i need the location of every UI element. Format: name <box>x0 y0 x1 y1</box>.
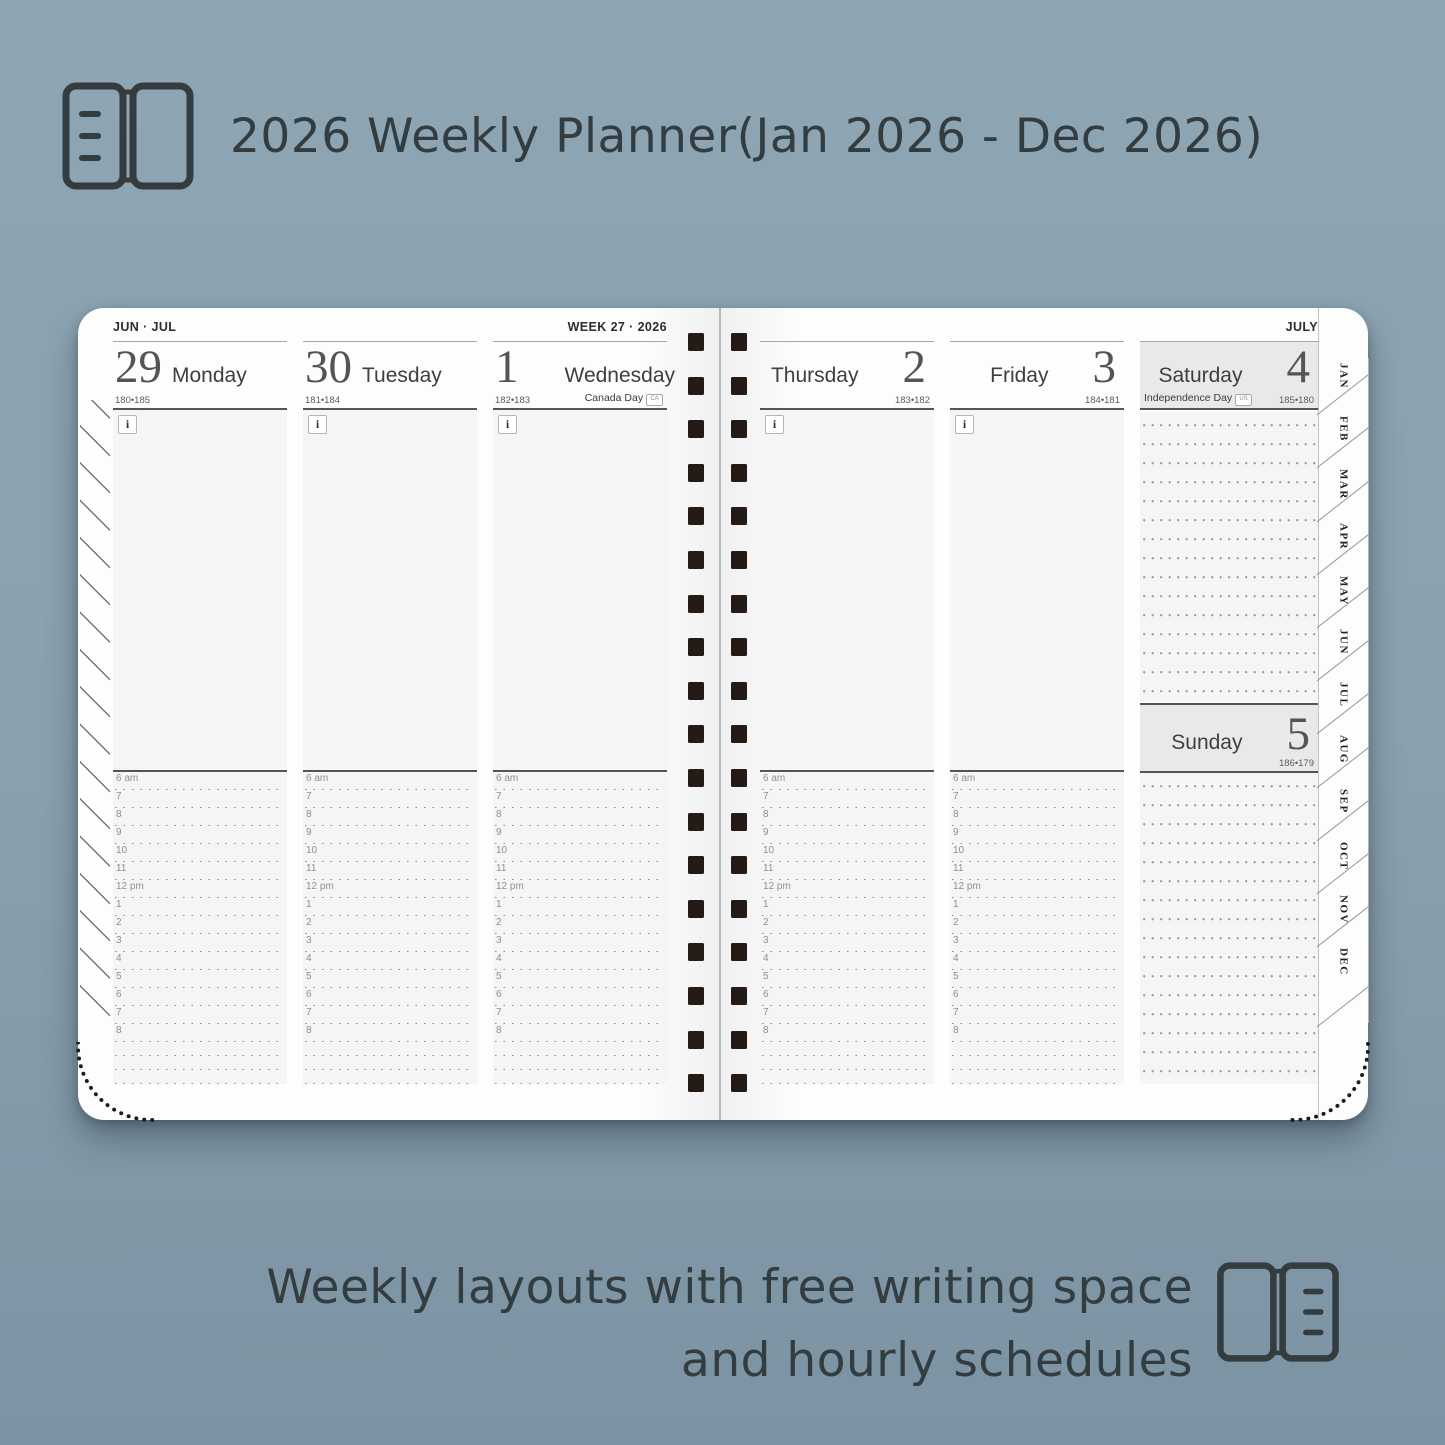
binding-hole <box>688 507 704 525</box>
open-planner-icon <box>58 80 198 192</box>
binding-hole <box>688 638 704 656</box>
hour-label: 7 <box>953 791 959 802</box>
hour-row: 9 <box>760 826 934 844</box>
day-name: Tuesday <box>362 364 442 388</box>
sunday-notes-area <box>1140 773 1318 1084</box>
note-row <box>303 1042 477 1056</box>
hour-row: 12 pm <box>493 880 667 898</box>
hour-label: 11 <box>763 863 773 874</box>
saturday-header: Saturday 4 Independence Day US 185•180 <box>1140 342 1318 408</box>
month-tab-mar: MAR <box>1319 464 1369 517</box>
weekend-column: Saturday 4 Independence Day US 185•180 S… <box>1140 341 1318 1084</box>
hour-label: 1 <box>953 899 959 910</box>
note-row <box>303 1070 477 1084</box>
hour-row: 2 <box>760 916 934 934</box>
day-header: Thursday 2 <box>760 344 934 400</box>
binding-hole <box>731 464 747 482</box>
hour-row: 10 <box>760 844 934 862</box>
info-icon: i <box>498 415 517 434</box>
binding-hole <box>688 682 704 700</box>
month-tab-label: APR <box>1338 523 1350 550</box>
day-of-year: 180•185 <box>115 395 150 406</box>
binding-hole <box>731 769 747 787</box>
hour-row: 6 am <box>760 772 934 790</box>
hour-row: 4 <box>113 952 287 970</box>
month-tab-oct: OCT <box>1319 837 1369 890</box>
hourly-schedule: 6 am789101112 pm12345678 <box>760 772 934 1084</box>
hour-label: 10 <box>763 845 774 856</box>
binding-hole <box>688 725 704 743</box>
month-tab-label: MAR <box>1338 469 1350 500</box>
day-name: Wednesday <box>565 364 676 388</box>
hour-row: 2 <box>113 916 287 934</box>
hour-label: 7 <box>763 791 769 802</box>
info-icon: i <box>308 415 327 434</box>
hour-label: 6 <box>496 989 502 1000</box>
hour-row: 6 <box>493 988 667 1006</box>
hour-label: 4 <box>763 953 769 964</box>
hour-row: 7 <box>113 1006 287 1024</box>
day-ordinal-row: 181•184 <box>305 393 473 406</box>
note-row <box>760 1042 934 1056</box>
hourly-schedule: 6 am789101112 pm12345678 <box>113 772 287 1084</box>
binding-hole <box>731 507 747 525</box>
day-header: Friday 3 <box>950 344 1124 400</box>
hour-row: 9 <box>113 826 287 844</box>
hour-label: 6 am <box>496 773 518 784</box>
hour-row: 10 <box>303 844 477 862</box>
caption-line-1: Weekly layouts with free writing space <box>266 1252 1193 1325</box>
note-row <box>950 1042 1124 1056</box>
month-tab-may: MAY <box>1319 571 1369 624</box>
month-tab-label: NOV <box>1338 895 1350 924</box>
hour-label: 9 <box>496 827 502 838</box>
holiday-label: Independence Day US <box>1144 392 1252 406</box>
hour-label: 5 <box>953 971 959 982</box>
hour-row: 4 <box>760 952 934 970</box>
month-tab-label: OCT <box>1338 842 1350 870</box>
hour-row: 12 pm <box>760 880 934 898</box>
hour-label: 10 <box>953 845 964 856</box>
spiral-binding <box>688 308 752 1120</box>
day-of-year: 182•183 <box>495 395 530 406</box>
hour-label: 7 <box>763 1007 769 1018</box>
binding-hole <box>731 1031 747 1049</box>
hour-label: 7 <box>116 791 122 802</box>
header-rule <box>1140 408 1318 410</box>
hour-row: 8 <box>760 1024 934 1042</box>
hour-label: 9 <box>306 827 312 838</box>
binding-hole <box>688 856 704 874</box>
hour-label: 12 pm <box>763 881 791 892</box>
info-icon: i <box>955 415 974 434</box>
note-row <box>950 1070 1124 1084</box>
day-of-year: 183•182 <box>895 395 930 406</box>
page-title: 2026 Weekly Planner(Jan 2026 - Dec 2026) <box>230 109 1263 164</box>
hour-row: 7 <box>760 790 934 808</box>
day-number: 5 <box>1287 711 1311 758</box>
hour-label: 7 <box>496 791 502 802</box>
hour-row: 1 <box>113 898 287 916</box>
hour-label: 6 <box>763 989 769 1000</box>
hour-label: 10 <box>496 845 507 856</box>
writing-area: i 6 am789101112 pm12345678 <box>113 410 287 1084</box>
hour-row: 10 <box>113 844 287 862</box>
info-icon: i <box>765 415 784 434</box>
caption-line-2: and hourly schedules <box>266 1325 1193 1398</box>
hour-row: 7 <box>950 1006 1124 1024</box>
month-tab-label: FEB <box>1338 416 1350 442</box>
hour-label: 1 <box>763 899 769 910</box>
hour-label: 6 <box>306 989 312 1000</box>
hour-row: 4 <box>493 952 667 970</box>
tear-corner-dots-left <box>76 1042 156 1122</box>
month-tab-label: DEC <box>1338 948 1350 976</box>
hour-row: 6 <box>760 988 934 1006</box>
day-number: 1 <box>495 344 519 391</box>
hour-label: 10 <box>306 845 317 856</box>
hour-row: 6 am <box>950 772 1124 790</box>
dotted-rule <box>495 1083 665 1084</box>
hour-label: 8 <box>763 809 769 820</box>
writing-area: i 6 am789101112 pm12345678 <box>303 410 477 1084</box>
hour-row: 12 pm <box>950 880 1124 898</box>
hour-label: 8 <box>306 809 312 820</box>
month-tab-apr: APR <box>1319 518 1369 571</box>
day-name: Friday <box>990 364 1048 388</box>
day-ordinal-row: Independence Day US 185•180 <box>1144 393 1314 406</box>
hour-label: 8 <box>953 809 959 820</box>
hour-row: 7 <box>303 790 477 808</box>
hour-label: 5 <box>306 971 312 982</box>
month-tab-label: JUN <box>1338 629 1350 655</box>
binding-hole <box>688 1074 704 1092</box>
hour-label: 8 <box>763 1025 769 1036</box>
hour-label: 3 <box>116 935 122 946</box>
month-tab-label: MAY <box>1338 576 1350 606</box>
hour-label: 4 <box>116 953 122 964</box>
hour-row: 3 <box>950 934 1124 952</box>
binding-hole <box>688 420 704 438</box>
hour-label: 7 <box>116 1007 122 1018</box>
hour-label: 4 <box>496 953 502 964</box>
hour-label: 7 <box>306 1007 312 1018</box>
day-of-year: 181•184 <box>305 395 340 406</box>
hour-row: 6 <box>950 988 1124 1006</box>
sunday-header: Sunday 5 186•179 <box>1140 703 1318 773</box>
hour-label: 12 pm <box>306 881 334 892</box>
hour-label: 6 am <box>763 773 785 784</box>
dotted-rule <box>762 1083 932 1084</box>
saturday-notes-area <box>1140 412 1318 701</box>
writing-area: i 6 am789101112 pm12345678 <box>950 410 1124 1084</box>
hour-label: 11 <box>953 863 963 874</box>
hour-row: 2 <box>303 916 477 934</box>
hour-row: 1 <box>493 898 667 916</box>
hour-row: 8 <box>950 1024 1124 1042</box>
hour-row: 9 <box>303 826 477 844</box>
hour-label: 12 pm <box>116 881 144 892</box>
dotted-rule <box>305 1083 475 1084</box>
hour-label: 3 <box>763 935 769 946</box>
hour-label: 9 <box>763 827 769 838</box>
open-notebook-icon <box>1213 1248 1343 1381</box>
hour-row: 2 <box>493 916 667 934</box>
hour-row: 8 <box>113 1024 287 1042</box>
hour-label: 4 <box>306 953 312 964</box>
hour-row: 10 <box>950 844 1124 862</box>
day-column-monday: 29 Monday 180•185 i 6 am789101112 pm1234… <box>113 341 287 1084</box>
note-row <box>493 1042 667 1056</box>
binding-hole <box>688 900 704 918</box>
left-month-label: JUN · JUL <box>113 320 176 334</box>
binding-hole <box>731 333 747 351</box>
day-ordinal-row: 182•183 Canada Day CA <box>495 393 663 406</box>
binding-hole <box>731 595 747 613</box>
holiday-flag-icon: US <box>1235 394 1252 406</box>
hour-row: 11 <box>950 862 1124 880</box>
day-number: 29 <box>115 344 162 391</box>
hour-row: 1 <box>303 898 477 916</box>
day-column-wednesday: 1 Wednesday 182•183 Canada Day CA i 6 am… <box>493 341 667 1084</box>
hour-row: 11 <box>303 862 477 880</box>
hour-row: 5 <box>950 970 1124 988</box>
day-name: Thursday <box>771 364 859 388</box>
dotted-rule <box>952 1083 1122 1084</box>
hour-row: 8 <box>493 808 667 826</box>
right-month-label: JULY <box>1140 320 1318 334</box>
hour-row: 9 <box>950 826 1124 844</box>
hour-label: 2 <box>953 917 959 928</box>
hour-row: 4 <box>303 952 477 970</box>
hour-label: 1 <box>306 899 312 910</box>
binding-hole <box>731 943 747 961</box>
hour-label: 6 <box>953 989 959 1000</box>
hour-label: 7 <box>496 1007 502 1018</box>
binding-hole <box>731 1074 747 1092</box>
month-tab-label: JAN <box>1338 363 1350 389</box>
binding-hole <box>688 333 704 351</box>
binding-hole <box>731 420 747 438</box>
hour-row: 5 <box>760 970 934 988</box>
binding-hole <box>688 943 704 961</box>
hour-row: 9 <box>493 826 667 844</box>
month-tab-nov: NOV <box>1319 890 1369 943</box>
hour-label: 1 <box>116 899 122 910</box>
hourly-schedule: 6 am789101112 pm12345678 <box>950 772 1124 1084</box>
hour-row: 10 <box>493 844 667 862</box>
note-row <box>303 1056 477 1070</box>
day-ordinal-row: 183•182 <box>762 393 930 406</box>
day-number: 30 <box>305 344 352 391</box>
note-row <box>493 1056 667 1070</box>
day-name: Saturday <box>1158 364 1242 388</box>
binding-hole <box>731 638 747 656</box>
hour-row: 8 <box>950 808 1124 826</box>
hour-row: 5 <box>493 970 667 988</box>
hour-row: 6 <box>113 988 287 1006</box>
binding-hole <box>688 987 704 1005</box>
hour-label: 12 pm <box>496 881 524 892</box>
month-tab-jan: JAN <box>1319 358 1369 411</box>
hour-label: 3 <box>953 935 959 946</box>
hour-label: 8 <box>496 809 502 820</box>
hour-label: 5 <box>116 971 122 982</box>
hour-row: 1 <box>950 898 1124 916</box>
hour-row: 11 <box>493 862 667 880</box>
hour-row: 4 <box>950 952 1124 970</box>
binding-hole <box>731 682 747 700</box>
hour-label: 11 <box>116 863 126 874</box>
month-tabs: JANFEBMARAPRMAYJUNJULAUGSEPOCTNOVDEC <box>1318 308 1369 1120</box>
month-tab-jul: JUL <box>1319 677 1369 730</box>
hour-label: 7 <box>953 1007 959 1018</box>
hourly-schedule: 6 am789101112 pm12345678 <box>493 772 667 1084</box>
hour-label: 8 <box>306 1025 312 1036</box>
hour-row: 5 <box>113 970 287 988</box>
hour-label: 8 <box>496 1025 502 1036</box>
binding-hole <box>731 900 747 918</box>
day-column-thursday: Thursday 2 183•182 i 6 am789101112 pm123… <box>760 341 934 1084</box>
day-name: Monday <box>172 364 247 388</box>
day-column-friday: Friday 3 184•181 i 6 am789101112 pm12345… <box>950 341 1124 1084</box>
day-of-year: 186•179 <box>1279 758 1314 769</box>
hour-label: 2 <box>116 917 122 928</box>
hour-label: 2 <box>306 917 312 928</box>
binding-hole <box>731 725 747 743</box>
caption: Weekly layouts with free writing space a… <box>266 1252 1193 1398</box>
hour-row: 3 <box>113 934 287 952</box>
hour-label: 6 <box>116 989 122 1000</box>
hour-label: 9 <box>116 827 122 838</box>
hour-row: 12 pm <box>113 880 287 898</box>
left-tab-edge-hatch <box>80 400 110 1022</box>
binding-hole <box>731 377 747 395</box>
binding-hole <box>731 987 747 1005</box>
day-ordinal-row: 180•185 <box>115 393 283 406</box>
hour-row: 8 <box>113 808 287 826</box>
hour-label: 11 <box>496 863 506 874</box>
note-row <box>493 1070 667 1084</box>
hour-row: 2 <box>950 916 1124 934</box>
hour-row: 6 <box>303 988 477 1006</box>
binding-hole <box>688 769 704 787</box>
hour-label: 5 <box>763 971 769 982</box>
hour-label: 6 am <box>306 773 328 784</box>
note-row <box>760 1056 934 1070</box>
hour-row: 7 <box>303 1006 477 1024</box>
month-tab-label: JUL <box>1338 682 1350 707</box>
hour-label: 1 <box>496 899 502 910</box>
hour-row: 5 <box>303 970 477 988</box>
binding-hole <box>688 1031 704 1049</box>
day-number: 2 <box>903 344 927 391</box>
hour-row: 6 am <box>303 772 477 790</box>
binding-hole <box>688 464 704 482</box>
binding-hole <box>688 551 704 569</box>
hour-row: 3 <box>760 934 934 952</box>
day-of-year: 185•180 <box>1279 395 1314 406</box>
month-tab-sep: SEP <box>1319 784 1369 837</box>
month-tab-label: AUG <box>1338 735 1350 764</box>
hour-label: 2 <box>496 917 502 928</box>
hourly-schedule: 6 am789101112 pm12345678 <box>303 772 477 1084</box>
hour-label: 8 <box>116 809 122 820</box>
hour-label: 11 <box>306 863 316 874</box>
hour-label: 4 <box>953 953 959 964</box>
month-tab-feb: FEB <box>1319 411 1369 464</box>
product-image: 2026 Weekly Planner(Jan 2026 - Dec 2026)… <box>0 0 1445 1445</box>
hour-label: 3 <box>306 935 312 946</box>
writing-area: i 6 am789101112 pm12345678 <box>493 410 667 1084</box>
hour-row: 7 <box>113 790 287 808</box>
hour-label: 10 <box>116 845 127 856</box>
hour-row: 6 am <box>113 772 287 790</box>
hour-row: 7 <box>950 790 1124 808</box>
hour-label: 3 <box>496 935 502 946</box>
hour-row: 1 <box>760 898 934 916</box>
hour-row: 8 <box>303 808 477 826</box>
hour-row: 11 <box>760 862 934 880</box>
binding-hole <box>731 856 747 874</box>
hour-label: 9 <box>953 827 959 838</box>
month-tab-jun: JUN <box>1319 624 1369 677</box>
month-tab-aug: AUG <box>1319 730 1369 783</box>
hour-row: 8 <box>303 1024 477 1042</box>
hour-row: 7 <box>760 1006 934 1024</box>
binding-hole <box>688 813 704 831</box>
month-tab-label: SEP <box>1338 789 1350 814</box>
hour-label: 6 am <box>953 773 975 784</box>
holiday-label: Canada Day CA <box>585 392 663 406</box>
day-name: Sunday <box>1171 731 1242 755</box>
binding-hole <box>688 377 704 395</box>
note-row <box>950 1056 1124 1070</box>
hour-label: 7 <box>306 791 312 802</box>
month-tab-dec: DEC <box>1319 943 1369 1023</box>
hour-row: 8 <box>493 1024 667 1042</box>
day-header: 30 Tuesday <box>303 344 477 400</box>
hour-row: 11 <box>113 862 287 880</box>
planner-spread: JUN · JUL WEEK 27 · 2026 JULY 29 Monday … <box>78 308 1368 1120</box>
note-row <box>760 1070 934 1084</box>
hour-row: 6 am <box>493 772 667 790</box>
hour-label: 8 <box>953 1025 959 1036</box>
hour-label: 5 <box>496 971 502 982</box>
week-label: WEEK 27 · 2026 <box>493 320 667 334</box>
writing-area: i 6 am789101112 pm12345678 <box>760 410 934 1084</box>
binding-hole <box>688 595 704 613</box>
heading: 2026 Weekly Planner(Jan 2026 - Dec 2026) <box>58 80 1263 192</box>
day-number: 3 <box>1093 344 1117 391</box>
day-of-year: 184•181 <box>1085 395 1120 406</box>
hour-label: 2 <box>763 917 769 928</box>
hour-row: 12 pm <box>303 880 477 898</box>
hour-label: 8 <box>116 1025 122 1036</box>
day-ordinal-row: 186•179 <box>1144 756 1314 769</box>
day-number: 4 <box>1287 344 1311 391</box>
binding-hole <box>731 551 747 569</box>
day-header: 29 Monday <box>113 344 287 400</box>
hour-row: 7 <box>493 1006 667 1024</box>
hour-label: 6 am <box>116 773 138 784</box>
hour-row: 8 <box>760 808 934 826</box>
day-ordinal-row: 184•181 <box>952 393 1120 406</box>
day-column-tuesday: 30 Tuesday 181•184 i 6 am789101112 pm123… <box>303 341 477 1084</box>
holiday-flag-icon: CA <box>646 394 663 406</box>
info-icon: i <box>118 415 137 434</box>
hour-row: 7 <box>493 790 667 808</box>
